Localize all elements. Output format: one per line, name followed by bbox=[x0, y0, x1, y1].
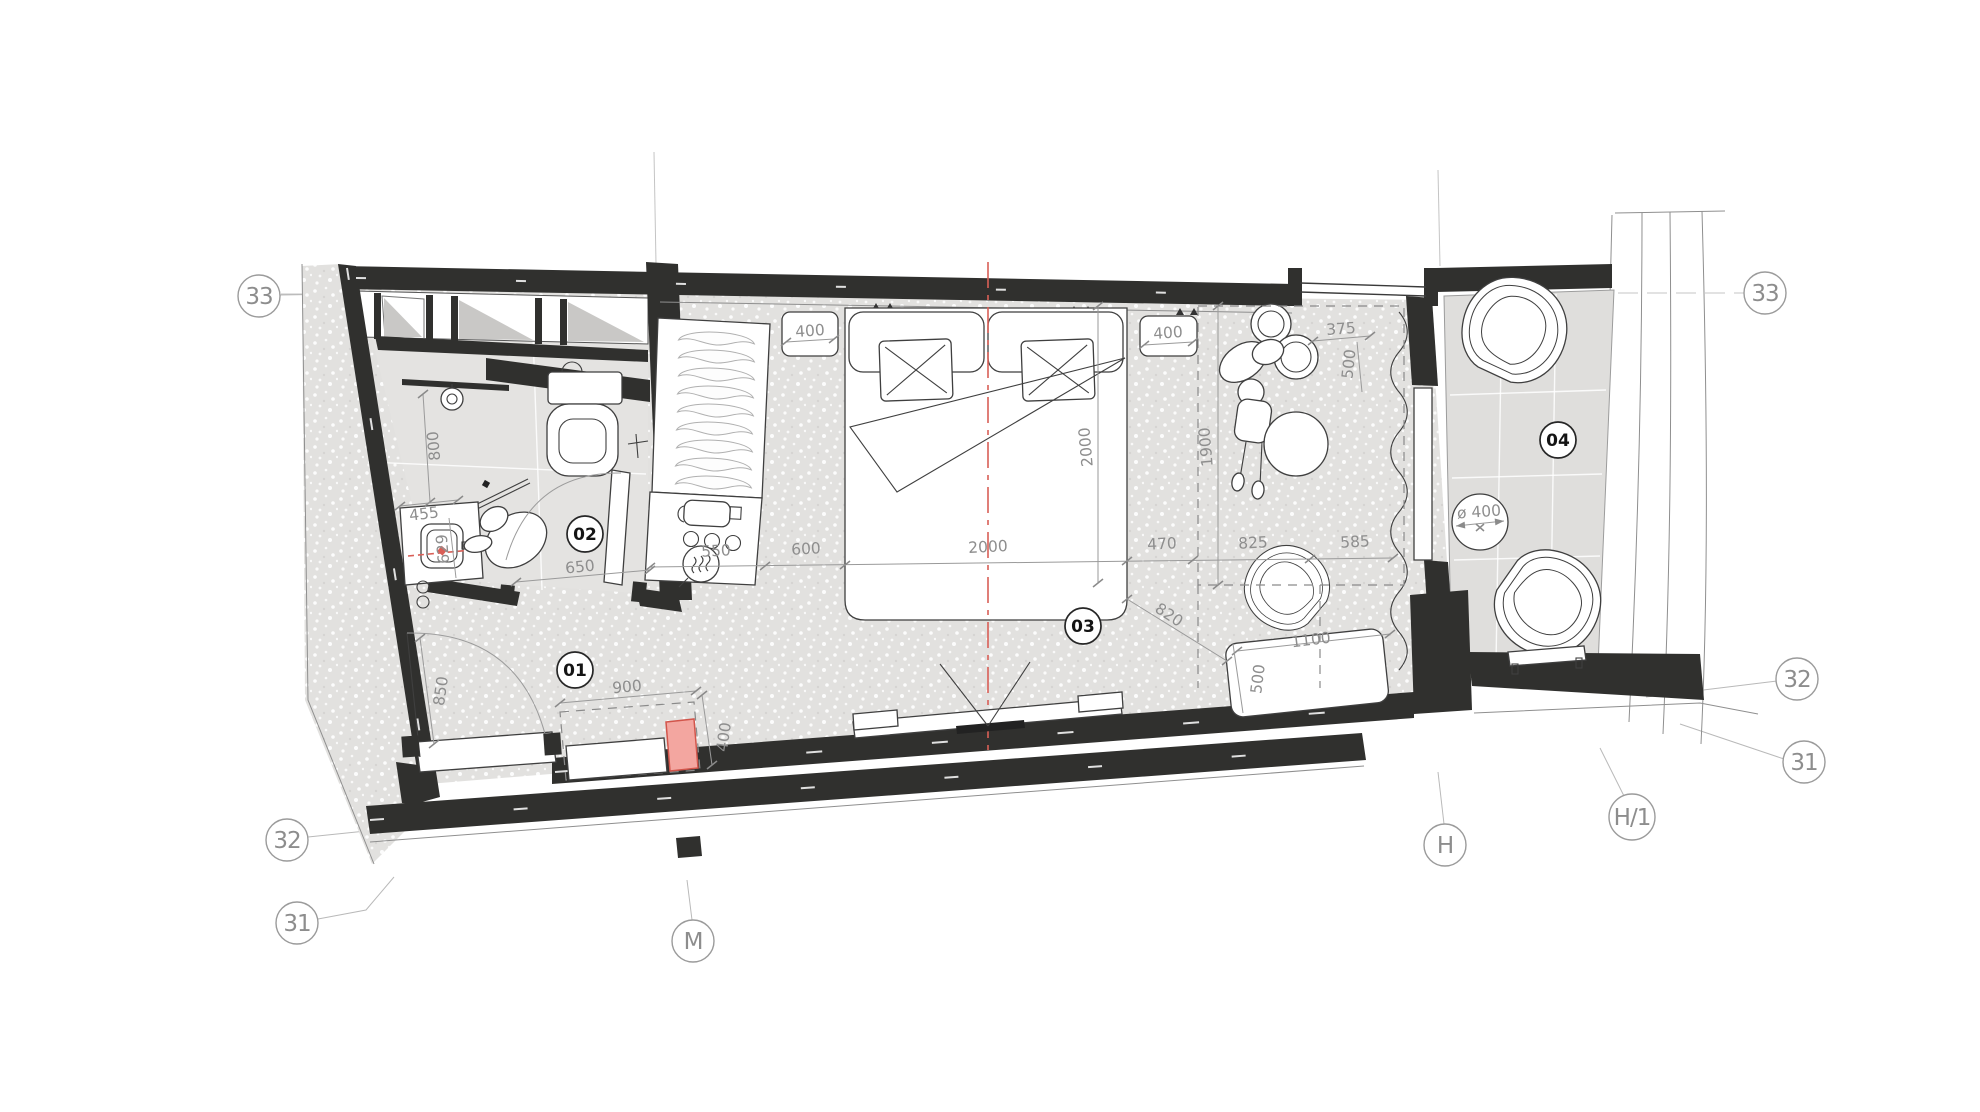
dim-vanity-w: 455 bbox=[408, 503, 440, 524]
wc-cistern bbox=[548, 372, 622, 404]
round-table bbox=[1264, 412, 1328, 476]
wall-stub-m bbox=[676, 836, 702, 858]
door-jamb-block bbox=[401, 735, 419, 757]
highlighted-riser bbox=[666, 719, 698, 771]
axis-h-top bbox=[1438, 170, 1440, 266]
shower-head-icon bbox=[441, 388, 463, 410]
window-jamb-right bbox=[1424, 268, 1438, 306]
room-label-04: 04 bbox=[1546, 431, 1570, 451]
dim-nightstand-left: 400 bbox=[795, 321, 826, 341]
grid-label-h: H bbox=[1437, 833, 1453, 859]
dim-470: 470 bbox=[1147, 534, 1177, 554]
dim-bed-width: 2000 bbox=[968, 537, 1008, 557]
grid-label-h1: H/1 bbox=[1614, 805, 1651, 831]
balcony-door-leaf bbox=[1414, 388, 1432, 560]
floor-plan-canvas: 550 600 2000 470 825 585 800 455 629 650… bbox=[0, 0, 1980, 1112]
console-cap-left bbox=[853, 710, 898, 730]
grid-label-32-left: 32 bbox=[273, 828, 300, 854]
niche-mullion bbox=[451, 296, 458, 342]
dim-desk-depth: 500 bbox=[1247, 663, 1268, 695]
dim-825: 825 bbox=[1238, 533, 1268, 553]
room-label-03: 03 bbox=[1071, 617, 1095, 637]
wc-bowl bbox=[547, 404, 618, 476]
grid-label-31-right: 31 bbox=[1790, 750, 1817, 776]
door-jamb-block bbox=[499, 584, 515, 603]
niche-mullion bbox=[535, 298, 542, 344]
grid-label-32-right: 32 bbox=[1783, 667, 1810, 693]
leader-32-left bbox=[308, 831, 366, 837]
axis-m-top bbox=[654, 152, 656, 264]
dim-stool-w: 375 bbox=[1326, 319, 1357, 339]
grid-label-m: M bbox=[684, 929, 703, 955]
grid-label-33-left: 33 bbox=[245, 284, 272, 310]
grid-label-33-right: 33 bbox=[1751, 281, 1778, 307]
facade-curve-4 bbox=[1701, 211, 1706, 744]
leader-m bbox=[687, 880, 692, 920]
window-jamb-left bbox=[1288, 268, 1302, 306]
dim-console: 550 bbox=[701, 541, 731, 561]
dim-bed-length: 2000 bbox=[1075, 427, 1096, 468]
leader-h1 bbox=[1600, 748, 1625, 798]
pillow-right bbox=[1021, 339, 1095, 401]
leader-31-left bbox=[318, 877, 394, 919]
niche-mullion bbox=[426, 295, 433, 341]
door-jamb-block bbox=[543, 732, 561, 755]
dim-585: 585 bbox=[1340, 532, 1370, 552]
room-label-01: 01 bbox=[563, 661, 587, 681]
floor-plan-drawing: 550 600 2000 470 825 585 800 455 629 650… bbox=[0, 0, 1980, 1112]
luggage-bench bbox=[566, 738, 667, 780]
pillow-left bbox=[879, 339, 953, 401]
dim-stool-d: 500 bbox=[1339, 348, 1360, 379]
dim-gap: 600 bbox=[791, 539, 821, 559]
window-glass-line bbox=[1300, 283, 1426, 287]
window-glass-line bbox=[1300, 292, 1426, 296]
dim-niche-w: 900 bbox=[611, 677, 642, 698]
niche-mullion bbox=[560, 299, 567, 345]
dim-nightstand-right: 400 bbox=[1153, 323, 1184, 343]
dim-zone: 1900 bbox=[1195, 427, 1216, 468]
dim-table-diameter: ø 400 bbox=[1456, 501, 1501, 522]
outer-wall-line-right bbox=[1474, 703, 1758, 714]
leader-h bbox=[1438, 772, 1444, 824]
dim-bath-door: 650 bbox=[564, 557, 595, 578]
dim-shower: 800 bbox=[424, 430, 445, 461]
console-cap-right bbox=[1078, 692, 1123, 712]
leader-31-right bbox=[1680, 724, 1784, 759]
niche-mullion bbox=[374, 293, 381, 339]
door-jamb-block bbox=[631, 581, 647, 602]
grid-label-31-left: 31 bbox=[283, 911, 310, 937]
room-label-02: 02 bbox=[573, 525, 597, 545]
dim-vanity-d: 629 bbox=[433, 533, 454, 564]
kettle-icon bbox=[683, 500, 730, 527]
facade-curve-2 bbox=[1629, 213, 1642, 722]
